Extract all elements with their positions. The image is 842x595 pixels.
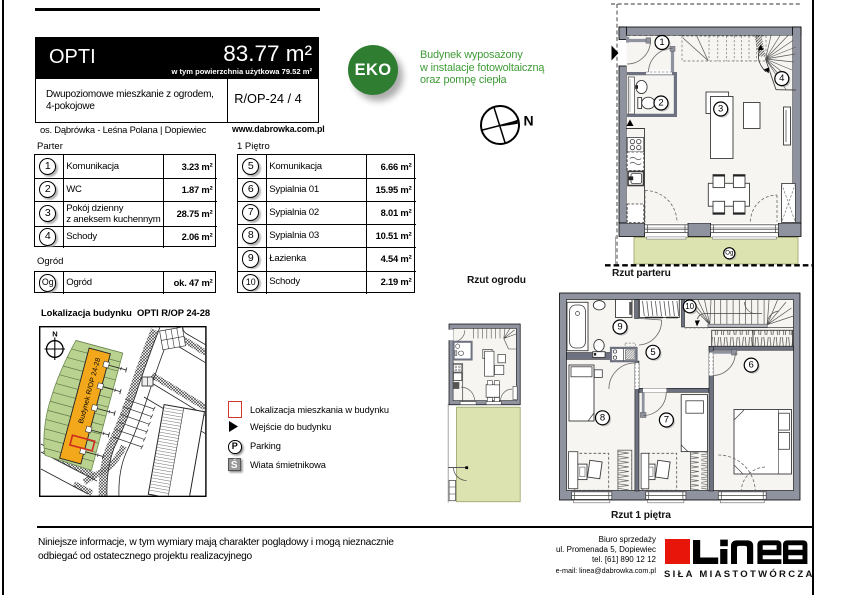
svg-text:2: 2 [658,98,663,109]
svg-text:Og: Og [725,250,733,256]
svg-text:1: 1 [659,37,664,48]
svg-text:6: 6 [749,360,754,371]
svg-text:N: N [52,330,57,339]
svg-text:4: 4 [779,73,784,84]
svg-text:10: 10 [685,302,694,311]
svg-text:5: 5 [650,347,655,358]
svg-text:7: 7 [664,415,669,426]
svg-text:3: 3 [718,104,723,115]
svg-text:8: 8 [600,412,605,423]
svg-text:9: 9 [617,322,622,333]
